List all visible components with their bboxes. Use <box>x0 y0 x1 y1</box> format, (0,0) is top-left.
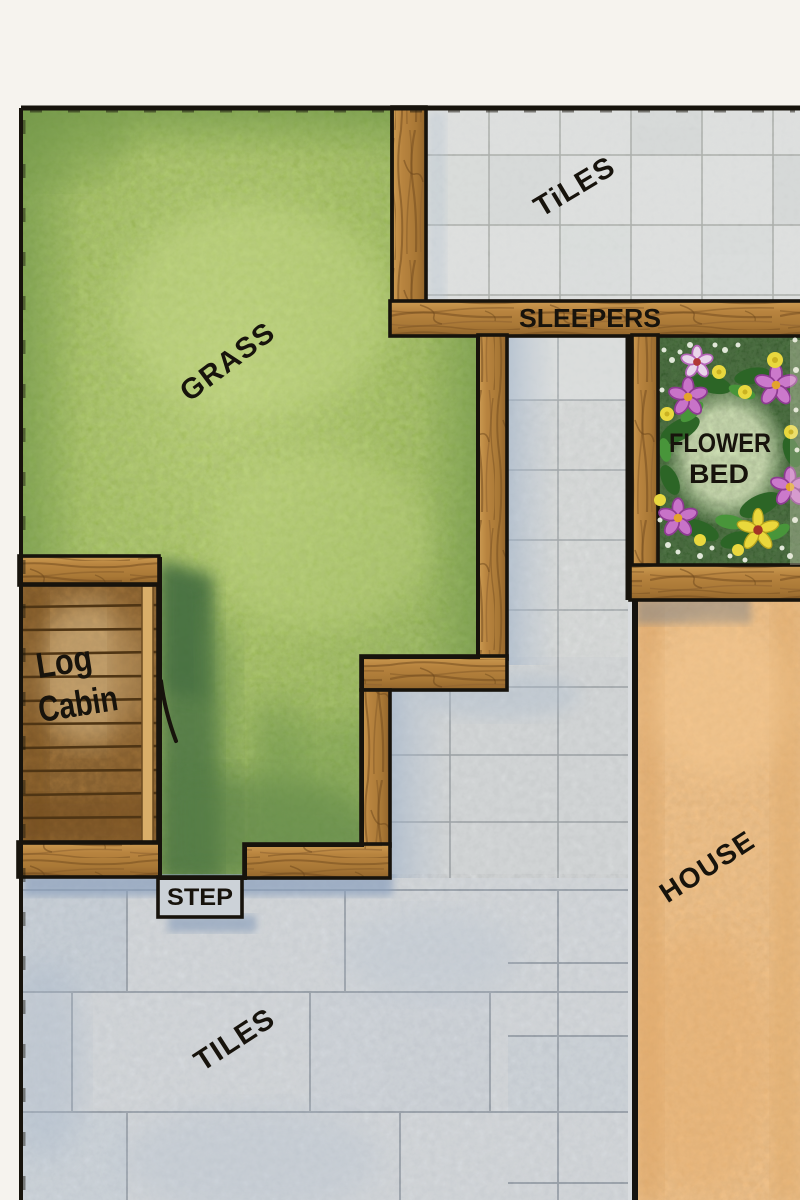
svg-text:BED: BED <box>689 459 749 489</box>
svg-text:SLEEPERS: SLEEPERS <box>519 303 661 333</box>
svg-text:Log: Log <box>33 637 95 686</box>
svg-text:STEP: STEP <box>167 884 233 911</box>
svg-text:FLOWER: FLOWER <box>669 428 771 458</box>
